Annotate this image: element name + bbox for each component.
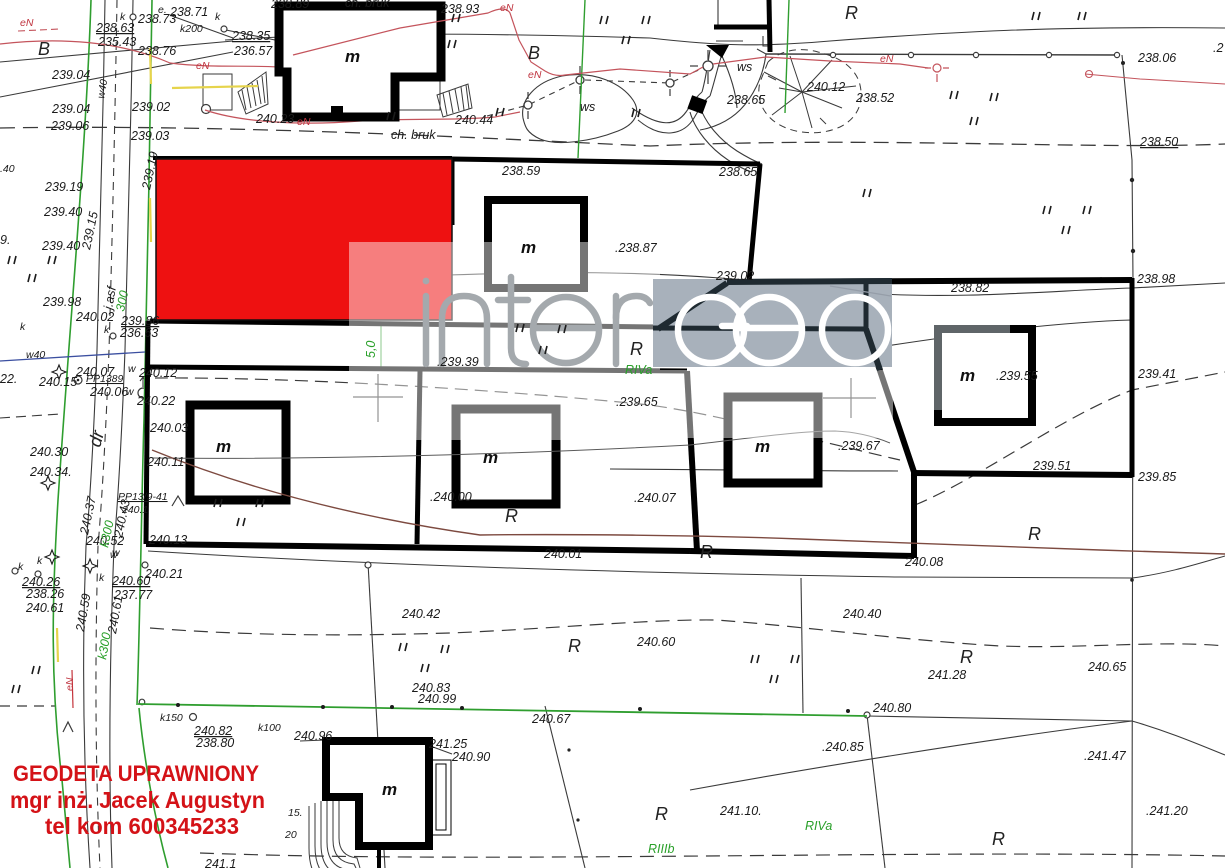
svg-text:236.63: 236.63 — [119, 326, 158, 340]
svg-text:.239.39: .239.39 — [437, 355, 479, 369]
svg-text:238.06: 238.06 — [1137, 51, 1176, 65]
svg-text:k: k — [37, 555, 43, 567]
svg-text:B: B — [528, 43, 540, 63]
svg-text:235.43: 235.43 — [97, 35, 136, 49]
svg-text:240.90: 240.90 — [451, 750, 490, 764]
svg-text:239.02: 239.02 — [131, 100, 170, 114]
svg-text:.40: .40 — [0, 163, 15, 175]
svg-text:.240.85: .240.85 — [822, 740, 864, 754]
svg-text:eN: eN — [528, 69, 542, 81]
svg-text:m: m — [345, 47, 360, 66]
svg-text:ws: ws — [737, 60, 752, 74]
svg-text:240.99: 240.99 — [417, 692, 456, 706]
svg-text:R: R — [1028, 524, 1041, 544]
svg-text:k: k — [18, 561, 24, 573]
svg-text:238.59: 238.59 — [501, 164, 540, 178]
svg-text:R: R — [655, 804, 668, 824]
svg-text:241.28: 241.28 — [927, 668, 966, 682]
svg-text:w40: w40 — [26, 349, 45, 361]
svg-text:20: 20 — [284, 829, 297, 841]
svg-text:238.76: 238.76 — [137, 44, 176, 58]
svg-text:238.65: 238.65 — [718, 165, 757, 179]
svg-text:240.60: 240.60 — [111, 574, 150, 588]
svg-text:R: R — [992, 829, 1005, 849]
svg-text:R: R — [845, 3, 858, 23]
svg-text:240.42: 240.42 — [401, 607, 440, 621]
svg-text:238.80: 238.80 — [195, 736, 234, 750]
svg-text:239.06: 239.06 — [50, 119, 89, 133]
svg-text:.239.67: .239.67 — [838, 439, 881, 453]
svg-text:k: k — [104, 324, 110, 336]
svg-text:.240.00: .240.00 — [430, 490, 472, 504]
svg-text:eN: eN — [500, 2, 514, 14]
svg-text:240.34.: 240.34. — [29, 465, 72, 479]
svg-text:mgr inż. Jacek Augustyn: mgr inż. Jacek Augustyn — [10, 787, 265, 813]
svg-text:239.40: 239.40 — [43, 205, 82, 219]
svg-text:5,0: 5,0 — [364, 341, 378, 358]
svg-text:m: m — [755, 437, 770, 456]
svg-text:R: R — [568, 636, 581, 656]
svg-text:239.19: 239.19 — [44, 180, 83, 194]
svg-text:241.10.: 241.10. — [719, 804, 762, 818]
svg-text:eN: eN — [196, 60, 210, 72]
svg-text:236.57: 236.57 — [233, 44, 273, 58]
svg-text:238.50: 238.50 — [1139, 135, 1178, 149]
svg-text:15.: 15. — [288, 807, 303, 819]
svg-text:ch. bruk: ch. bruk — [391, 128, 436, 142]
svg-text:239.04: 239.04 — [51, 68, 90, 82]
svg-text:m: m — [521, 238, 536, 257]
svg-text:240.60: 240.60 — [636, 635, 675, 649]
svg-text:241.25: 241.25 — [428, 737, 467, 751]
svg-text:239.03: 239.03 — [130, 129, 169, 143]
svg-text:237.77: 237.77 — [113, 588, 153, 602]
svg-text:RIVa: RIVa — [805, 819, 832, 833]
svg-text:m: m — [483, 448, 498, 467]
svg-text:eN: eN — [64, 677, 76, 691]
svg-text:.239.55: .239.55 — [996, 369, 1038, 383]
svg-text:240.01: 240.01 — [543, 547, 582, 561]
svg-text:240.67: 240.67 — [531, 712, 571, 726]
svg-text:240.61: 240.61 — [25, 601, 64, 615]
svg-text:.239.65: .239.65 — [616, 395, 658, 409]
svg-text:239.02: 239.02 — [715, 269, 754, 283]
svg-text:238.71: 238.71 — [169, 5, 208, 19]
svg-text:m: m — [960, 366, 975, 385]
svg-text:k100: k100 — [258, 722, 281, 734]
svg-text:tel kom 600345233: tel kom 600345233 — [45, 813, 239, 839]
svg-text:R: R — [630, 339, 643, 359]
svg-text:m: m — [216, 437, 231, 456]
svg-text:239.04: 239.04 — [51, 102, 90, 116]
svg-text:ch. bruk: ch. bruk — [345, 0, 390, 10]
svg-text:240.03: 240.03 — [149, 421, 188, 435]
svg-text:239.41: 239.41 — [1137, 367, 1176, 381]
svg-text:238.89: 238.89 — [270, 0, 309, 11]
svg-text:m: m — [382, 780, 397, 799]
svg-text:e.: e. — [158, 4, 167, 16]
svg-text:240.22: 240.22 — [136, 394, 175, 408]
svg-text:9.: 9. — [0, 233, 10, 247]
svg-text:240.12: 240.12 — [138, 366, 177, 380]
svg-text:.2: .2 — [1213, 41, 1223, 55]
svg-text:k: k — [20, 321, 26, 333]
svg-text:k: k — [99, 572, 105, 584]
svg-text:GEODETA UPRAWNIONY: GEODETA UPRAWNIONY — [13, 761, 259, 786]
svg-text:eN: eN — [880, 53, 894, 65]
svg-text:238.52: 238.52 — [855, 91, 894, 105]
svg-text:.238.87: .238.87 — [615, 241, 658, 255]
svg-text:ws: ws — [580, 100, 595, 114]
svg-text:PP1389: PP1389 — [86, 373, 124, 385]
svg-text:.241.47: .241.47 — [1084, 749, 1127, 763]
svg-text:239.51: 239.51 — [1032, 459, 1071, 473]
svg-text:R: R — [505, 506, 518, 526]
svg-text:238.26: 238.26 — [25, 587, 64, 601]
svg-text:240.30: 240.30 — [29, 445, 68, 459]
svg-text:.240.07: .240.07 — [634, 491, 677, 505]
svg-text:240.13: 240.13 — [148, 533, 187, 547]
svg-text:238.63: 238.63 — [95, 21, 134, 35]
svg-text:240.11: 240.11 — [146, 455, 184, 469]
svg-text:239.40: 239.40 — [41, 239, 80, 253]
svg-text:R: R — [700, 542, 713, 562]
svg-text:240.65: 240.65 — [1087, 660, 1126, 674]
svg-text:k150: k150 — [160, 712, 183, 724]
svg-text:238.82: 238.82 — [950, 281, 989, 295]
svg-text:k200: k200 — [180, 23, 203, 35]
svg-text:eN: eN — [20, 17, 34, 29]
svg-text:240.15: 240.15 — [38, 375, 77, 389]
svg-text:.241.20: .241.20 — [1146, 804, 1188, 818]
svg-text:k: k — [215, 11, 221, 23]
svg-text:240.06: 240.06 — [89, 385, 128, 399]
svg-text:RIVa: RIVa — [625, 363, 652, 377]
svg-text:240.12: 240.12 — [806, 80, 845, 94]
svg-text:238.65: 238.65 — [726, 93, 765, 107]
svg-text:22.: 22. — [0, 372, 17, 386]
svg-text:238.98: 238.98 — [1136, 272, 1175, 286]
svg-text:238.93: 238.93 — [440, 2, 479, 16]
svg-text:R: R — [960, 647, 973, 667]
svg-text:240.44: 240.44 — [454, 113, 493, 127]
svg-text:RIIIb: RIIIb — [648, 842, 674, 856]
svg-text:240.80: 240.80 — [872, 701, 911, 715]
svg-text:239.98: 239.98 — [42, 295, 81, 309]
svg-text:241.1: 241.1 — [204, 857, 236, 868]
svg-text:B: B — [38, 39, 50, 59]
svg-text:240.96: 240.96 — [293, 729, 332, 743]
svg-text:240.40: 240.40 — [842, 607, 881, 621]
svg-text:239.85: 239.85 — [1137, 470, 1176, 484]
svg-text:240.08: 240.08 — [904, 555, 943, 569]
svg-text:eN: eN — [297, 116, 311, 128]
svg-text:240.02: 240.02 — [75, 310, 114, 324]
svg-text:238.35: 238.35 — [231, 29, 270, 43]
svg-text:240.23: 240.23 — [255, 112, 294, 126]
